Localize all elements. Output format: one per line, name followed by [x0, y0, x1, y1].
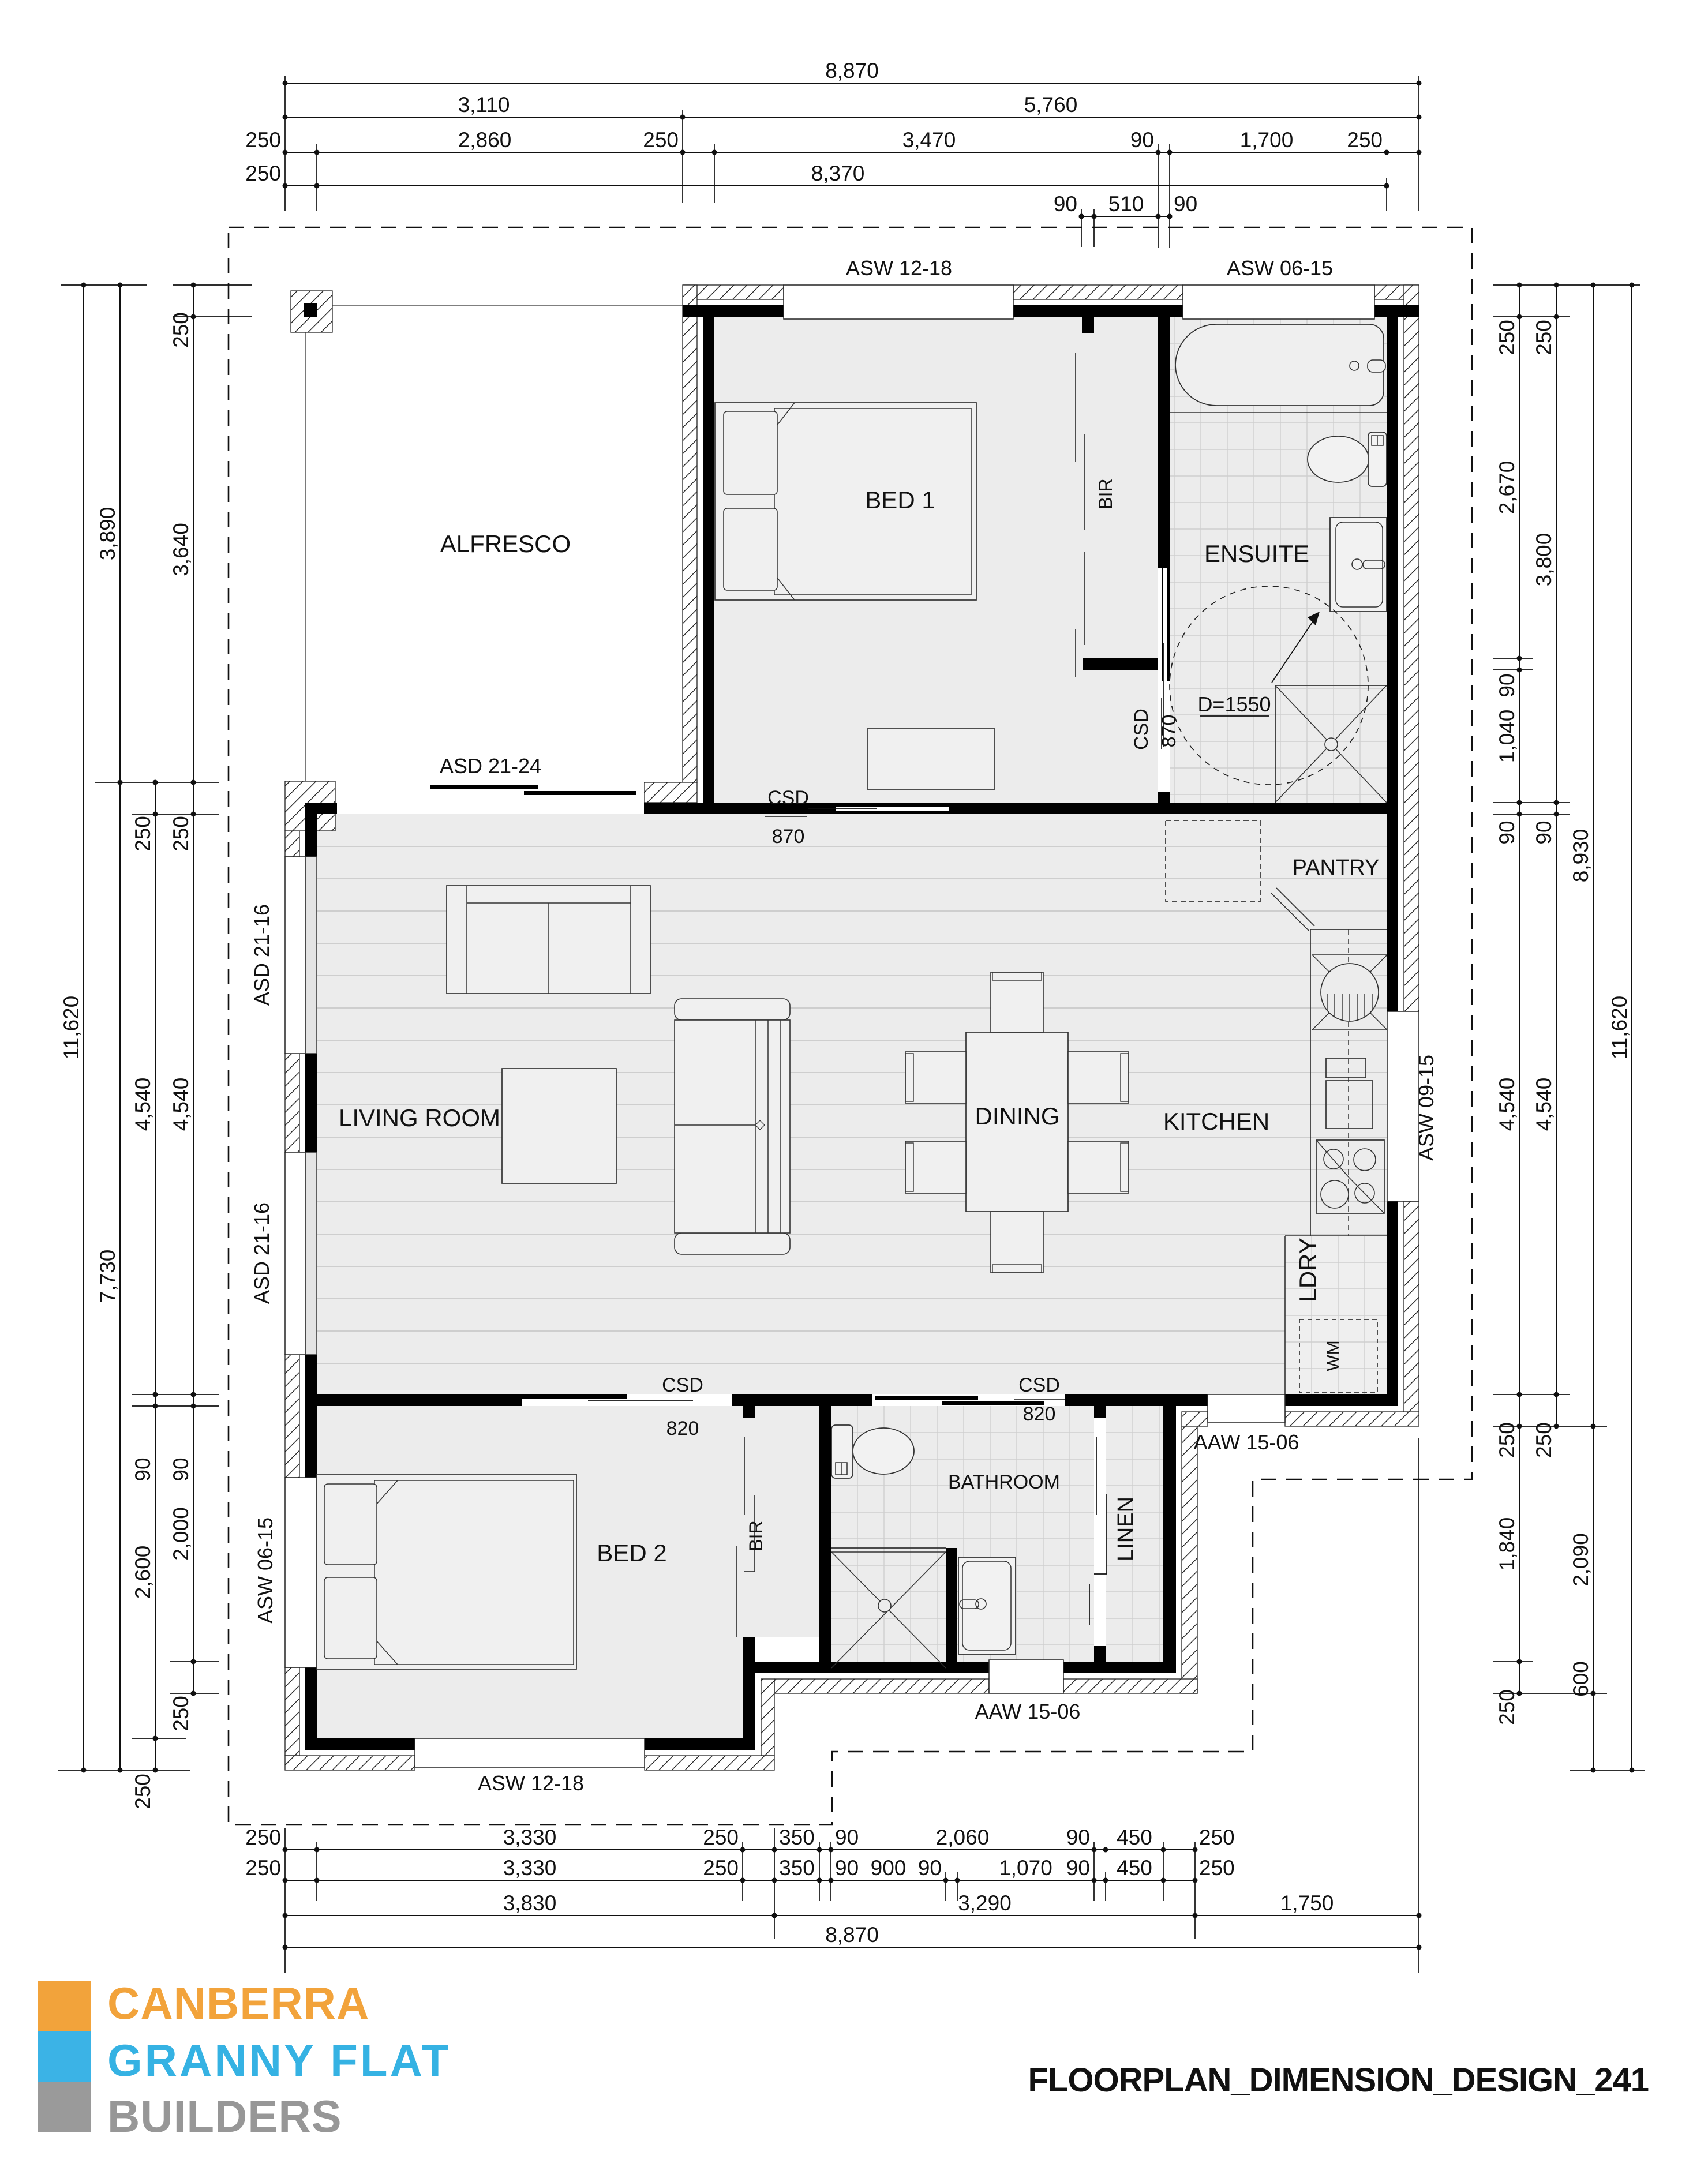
svg-text:11,620: 11,620: [1608, 996, 1631, 1059]
svg-text:FLOORPLAN_DIMENSION_DESIGN_241: FLOORPLAN_DIMENSION_DESIGN_241: [1028, 2061, 1649, 2099]
svg-text:250: 250: [131, 816, 155, 852]
svg-text:2,090: 2,090: [1569, 1533, 1593, 1587]
svg-text:D=1550: D=1550: [1197, 692, 1271, 716]
svg-text:ASD 21-16: ASD 21-16: [250, 1202, 274, 1304]
svg-text:250: 250: [245, 128, 281, 152]
svg-text:600: 600: [1569, 1661, 1593, 1697]
svg-text:BIR: BIR: [1095, 478, 1116, 509]
svg-text:KITCHEN: KITCHEN: [1163, 1108, 1269, 1135]
svg-text:WM: WM: [1324, 1340, 1343, 1371]
svg-text:250: 250: [169, 1696, 193, 1731]
svg-text:250: 250: [245, 1856, 281, 1880]
svg-text:250: 250: [703, 1856, 739, 1880]
svg-text:90: 90: [918, 1856, 942, 1880]
svg-text:3,640: 3,640: [169, 523, 193, 576]
svg-text:90: 90: [1066, 1825, 1090, 1849]
svg-text:820: 820: [666, 1418, 699, 1439]
svg-text:250: 250: [131, 1774, 155, 1809]
svg-text:3,890: 3,890: [96, 507, 119, 561]
svg-text:350: 350: [779, 1856, 815, 1880]
svg-text:250: 250: [1532, 320, 1556, 355]
svg-text:3,330: 3,330: [503, 1856, 557, 1880]
svg-text:2,000: 2,000: [169, 1507, 193, 1561]
svg-text:CANBERRA: CANBERRA: [107, 1978, 369, 2029]
svg-text:PANTRY: PANTRY: [1293, 856, 1380, 880]
svg-text:2,670: 2,670: [1495, 461, 1519, 515]
svg-text:90: 90: [1130, 128, 1154, 152]
svg-text:90: 90: [835, 1856, 859, 1880]
svg-text:250: 250: [1347, 128, 1383, 152]
svg-text:3,110: 3,110: [458, 93, 510, 117]
svg-text:250: 250: [1199, 1825, 1235, 1849]
svg-text:510: 510: [1108, 192, 1144, 216]
svg-text:AAW 15-06: AAW 15-06: [975, 1700, 1081, 1723]
svg-text:AAW 15-06: AAW 15-06: [1194, 1430, 1299, 1454]
svg-text:2,060: 2,060: [936, 1825, 990, 1849]
svg-text:3,800: 3,800: [1532, 533, 1556, 587]
svg-text:2,600: 2,600: [131, 1546, 155, 1599]
svg-text:90: 90: [1066, 1856, 1090, 1880]
svg-text:8,870: 8,870: [825, 59, 879, 83]
svg-text:BIR: BIR: [746, 1520, 766, 1551]
svg-text:90: 90: [1532, 820, 1556, 844]
svg-text:GRANNY FLAT: GRANNY FLAT: [107, 2035, 451, 2086]
svg-text:11,620: 11,620: [59, 996, 83, 1059]
svg-text:CSD: CSD: [1130, 708, 1152, 750]
svg-text:2,860: 2,860: [458, 128, 512, 152]
svg-text:250: 250: [703, 1825, 739, 1849]
svg-text:250: 250: [1199, 1856, 1235, 1880]
svg-text:450: 450: [1117, 1825, 1152, 1849]
svg-text:250: 250: [1495, 1689, 1519, 1725]
svg-text:250: 250: [245, 1825, 281, 1849]
svg-text:90: 90: [1495, 673, 1519, 697]
svg-text:LIVING ROOM: LIVING ROOM: [339, 1104, 500, 1131]
svg-text:CSD: CSD: [662, 1374, 703, 1396]
svg-text:4,540: 4,540: [169, 1078, 193, 1131]
svg-text:450: 450: [1117, 1856, 1152, 1880]
svg-text:820: 820: [1023, 1403, 1056, 1425]
svg-text:8,930: 8,930: [1569, 829, 1593, 883]
svg-text:ASW 06-15: ASW 06-15: [253, 1517, 277, 1624]
svg-text:250: 250: [245, 162, 281, 185]
svg-text:3,290: 3,290: [958, 1891, 1012, 1915]
svg-text:90: 90: [1174, 192, 1197, 216]
svg-text:ENSUITE: ENSUITE: [1204, 540, 1309, 567]
svg-text:350: 350: [779, 1825, 815, 1849]
svg-text:1,070: 1,070: [999, 1856, 1052, 1880]
svg-text:LDRY: LDRY: [1294, 1238, 1321, 1302]
svg-text:900: 900: [871, 1856, 907, 1880]
svg-text:4,540: 4,540: [1495, 1078, 1519, 1131]
svg-text:CSD: CSD: [1018, 1374, 1060, 1396]
svg-text:90: 90: [1054, 192, 1077, 216]
svg-text:ASW 12-18: ASW 12-18: [478, 1771, 584, 1795]
svg-text:250: 250: [169, 312, 193, 348]
svg-text:3,830: 3,830: [503, 1891, 557, 1915]
svg-text:250: 250: [1532, 1422, 1556, 1458]
svg-text:ASW 12-18: ASW 12-18: [846, 256, 952, 280]
svg-text:90: 90: [131, 1457, 155, 1481]
svg-text:250: 250: [1495, 320, 1519, 355]
svg-text:5,760: 5,760: [1024, 93, 1078, 117]
svg-text:4,540: 4,540: [131, 1078, 155, 1131]
svg-text:4,540: 4,540: [1532, 1078, 1556, 1131]
svg-text:BED 2: BED 2: [597, 1539, 666, 1566]
svg-text:1,750: 1,750: [1280, 1891, 1334, 1915]
svg-text:90: 90: [169, 1457, 193, 1481]
svg-text:90: 90: [1495, 820, 1519, 844]
svg-text:BUILDERS: BUILDERS: [107, 2091, 342, 2142]
svg-text:LINEN: LINEN: [1114, 1497, 1138, 1561]
svg-text:250: 250: [643, 128, 679, 152]
svg-text:DINING: DINING: [975, 1103, 1060, 1130]
svg-text:1,840: 1,840: [1495, 1517, 1519, 1571]
svg-text:CSD: CSD: [767, 787, 809, 809]
svg-text:BATHROOM: BATHROOM: [948, 1471, 1060, 1493]
svg-text:870: 870: [1158, 715, 1180, 748]
svg-text:ALFRESCO: ALFRESCO: [440, 530, 571, 557]
svg-text:1,700: 1,700: [1240, 128, 1294, 152]
svg-text:3,470: 3,470: [902, 128, 956, 152]
svg-text:90: 90: [835, 1825, 859, 1849]
svg-text:8,370: 8,370: [811, 162, 865, 185]
svg-text:BED 1: BED 1: [865, 486, 935, 513]
svg-text:3,330: 3,330: [503, 1825, 557, 1849]
svg-text:8,870: 8,870: [825, 1923, 879, 1947]
svg-text:250: 250: [1495, 1422, 1519, 1458]
svg-text:ASW 06-15: ASW 06-15: [1227, 256, 1333, 280]
svg-text:ASW 09-15: ASW 09-15: [1414, 1055, 1438, 1161]
svg-text:1,040: 1,040: [1495, 710, 1519, 763]
svg-text:ASD 21-24: ASD 21-24: [440, 754, 541, 778]
svg-text:870: 870: [772, 826, 805, 848]
svg-text:7,730: 7,730: [96, 1250, 119, 1303]
svg-text:ASD 21-16: ASD 21-16: [250, 904, 274, 1006]
svg-text:250: 250: [169, 816, 193, 852]
